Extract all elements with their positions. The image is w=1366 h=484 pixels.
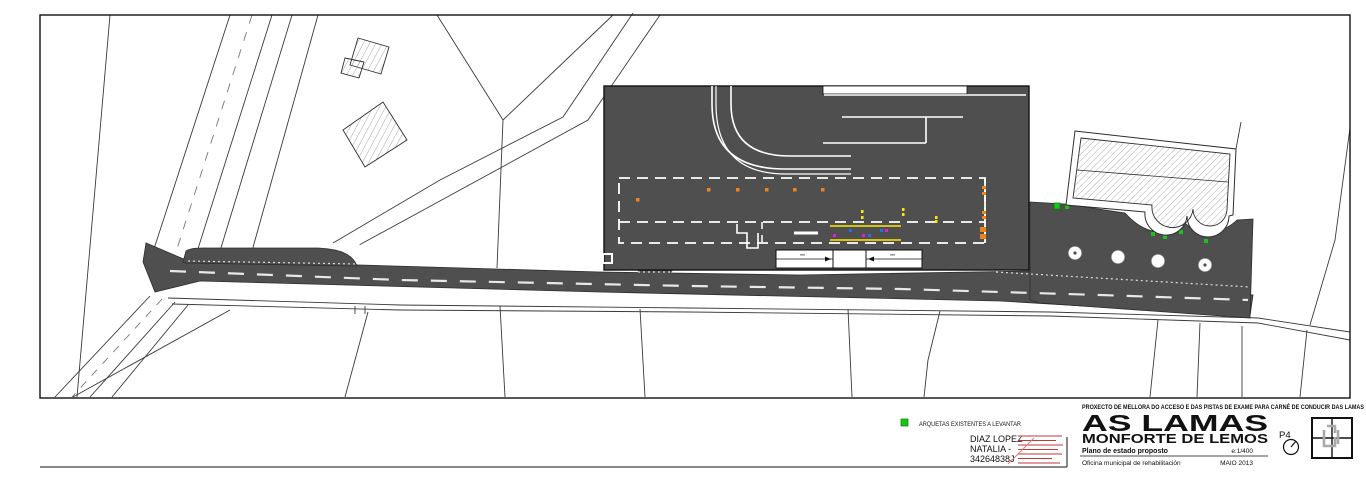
exam-area bbox=[603, 86, 1029, 270]
road-widening-notch bbox=[350, 244, 363, 257]
legend-label: ARQUETAS EXISTENTES A LEVANTAR bbox=[919, 421, 1021, 428]
signature-name-1: DIAZ LOPEZ bbox=[970, 434, 1023, 444]
municipality-title: MONFORTE DE LEMOS bbox=[1082, 432, 1268, 446]
signature-name-3: 34264838J bbox=[970, 454, 1015, 464]
road-widening bbox=[183, 248, 357, 266]
dimension-bays bbox=[776, 250, 922, 268]
plan-title: Plano de estado proposto bbox=[1082, 448, 1168, 455]
plan-sheet: ARQUETAS EXISTENTES A LEVANTAR DIAZ LOPE… bbox=[0, 0, 1366, 479]
plan-scale: e:1/400 bbox=[1231, 448, 1253, 455]
signature-name-2: NATALIA - bbox=[970, 444, 1011, 454]
office-name: Oficina municipal de rehabilitación bbox=[1082, 460, 1181, 467]
legend-swatch-green bbox=[901, 419, 908, 426]
plan-date: MAIO 2013 bbox=[1220, 460, 1253, 467]
legend: ARQUETAS EXISTENTES A LEVANTAR bbox=[901, 419, 1021, 428]
driveway-apron bbox=[637, 270, 673, 277]
office-logo bbox=[1312, 418, 1352, 458]
